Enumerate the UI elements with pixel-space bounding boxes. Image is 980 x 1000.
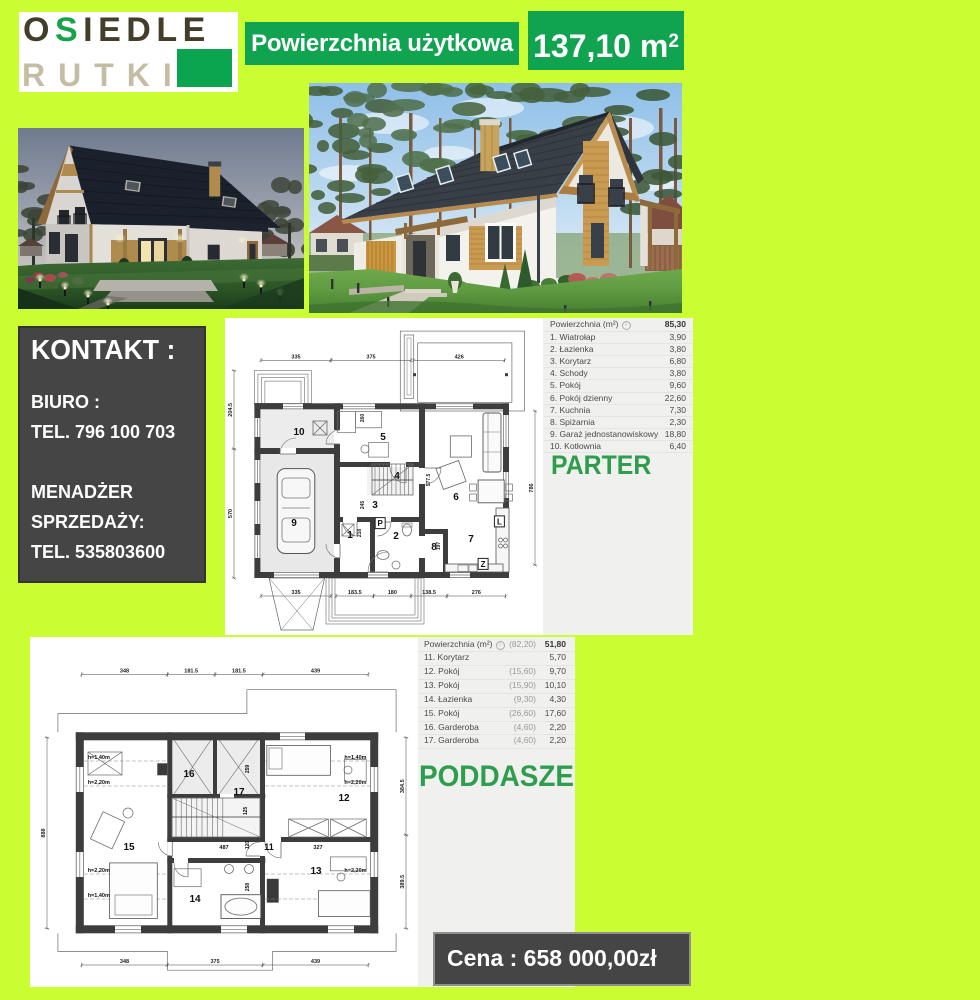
svg-text:17: 17	[233, 787, 245, 798]
svg-text:197: 197	[436, 542, 442, 551]
svg-text:439: 439	[311, 669, 320, 675]
svg-text:8: 8	[431, 542, 437, 553]
svg-text:577.5: 577.5	[426, 474, 432, 487]
svg-text:276: 276	[472, 590, 481, 596]
svg-text:120: 120	[245, 841, 251, 850]
svg-text:348: 348	[120, 669, 129, 675]
svg-text:487: 487	[219, 845, 228, 851]
svg-text:204.5: 204.5	[228, 403, 234, 417]
svg-text:1: 1	[347, 530, 353, 541]
svg-text:180: 180	[388, 590, 397, 596]
svg-text:389.5: 389.5	[400, 875, 406, 889]
svg-text:335: 335	[291, 590, 300, 596]
svg-text:11: 11	[264, 842, 274, 852]
svg-text:181.5: 181.5	[232, 669, 246, 675]
svg-text:5: 5	[380, 432, 386, 443]
svg-text:4: 4	[394, 471, 400, 482]
svg-text:375: 375	[366, 355, 375, 361]
svg-text:245: 245	[360, 501, 366, 510]
svg-text:181.5: 181.5	[184, 669, 198, 675]
svg-text:570: 570	[228, 509, 234, 518]
svg-text:335: 335	[291, 355, 300, 361]
svg-text:L: L	[497, 517, 502, 526]
svg-text:7: 7	[468, 534, 474, 545]
svg-text:138.5: 138.5	[422, 590, 436, 596]
svg-text:14: 14	[189, 894, 201, 905]
svg-text:12: 12	[338, 793, 350, 804]
svg-text:6: 6	[453, 492, 459, 503]
svg-text:375: 375	[210, 959, 219, 965]
svg-text:426: 426	[455, 355, 464, 361]
svg-text:10: 10	[293, 427, 305, 438]
svg-text:348: 348	[120, 959, 129, 965]
svg-text:888: 888	[41, 828, 47, 837]
svg-text:P: P	[378, 519, 384, 528]
svg-text:13: 13	[310, 866, 322, 877]
svg-text:260: 260	[360, 414, 366, 423]
svg-text:384.5: 384.5	[400, 779, 406, 793]
svg-text:258: 258	[245, 883, 251, 892]
svg-text:125: 125	[243, 807, 249, 816]
svg-text:218: 218	[357, 529, 363, 538]
svg-text:Z: Z	[481, 560, 486, 569]
svg-text:439: 439	[311, 959, 320, 965]
svg-text:327: 327	[313, 845, 322, 851]
svg-text:3: 3	[372, 500, 378, 511]
svg-text:2: 2	[393, 531, 399, 542]
svg-text:h=1,40m: h=1,40m	[344, 755, 366, 761]
svg-text:h=1,40m: h=1,40m	[88, 755, 110, 761]
svg-text:h=1,40m: h=1,40m	[88, 893, 110, 899]
svg-text:15: 15	[123, 842, 135, 853]
svg-text:183.5: 183.5	[348, 590, 362, 596]
svg-text:259: 259	[245, 765, 251, 774]
svg-text:9: 9	[291, 518, 297, 529]
svg-text:h=2,20m: h=2,20m	[88, 868, 110, 874]
svg-text:786: 786	[529, 483, 535, 492]
svg-text:h=2,20m: h=2,20m	[88, 780, 110, 786]
svg-text:16: 16	[183, 769, 195, 780]
